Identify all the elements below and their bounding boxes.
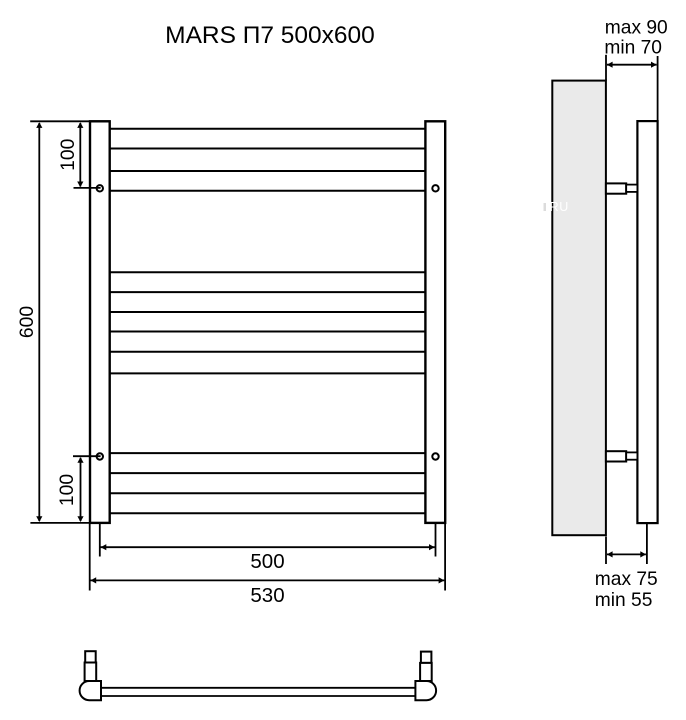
svg-text:max 75: max 75 [595, 569, 658, 590]
svg-text:600: 600 [17, 306, 38, 338]
svg-text:min 55: min 55 [595, 590, 653, 611]
svg-text:min 70: min 70 [604, 38, 662, 59]
svg-text:RU: RU [550, 200, 569, 214]
svg-text:100: 100 [57, 474, 78, 506]
svg-text:max 90: max 90 [605, 17, 668, 38]
svg-text:MARS П7 500x600: MARS П7 500x600 [165, 22, 375, 49]
svg-text:100: 100 [58, 139, 79, 171]
svg-text:500: 500 [250, 550, 284, 573]
svg-text:530: 530 [250, 584, 284, 607]
